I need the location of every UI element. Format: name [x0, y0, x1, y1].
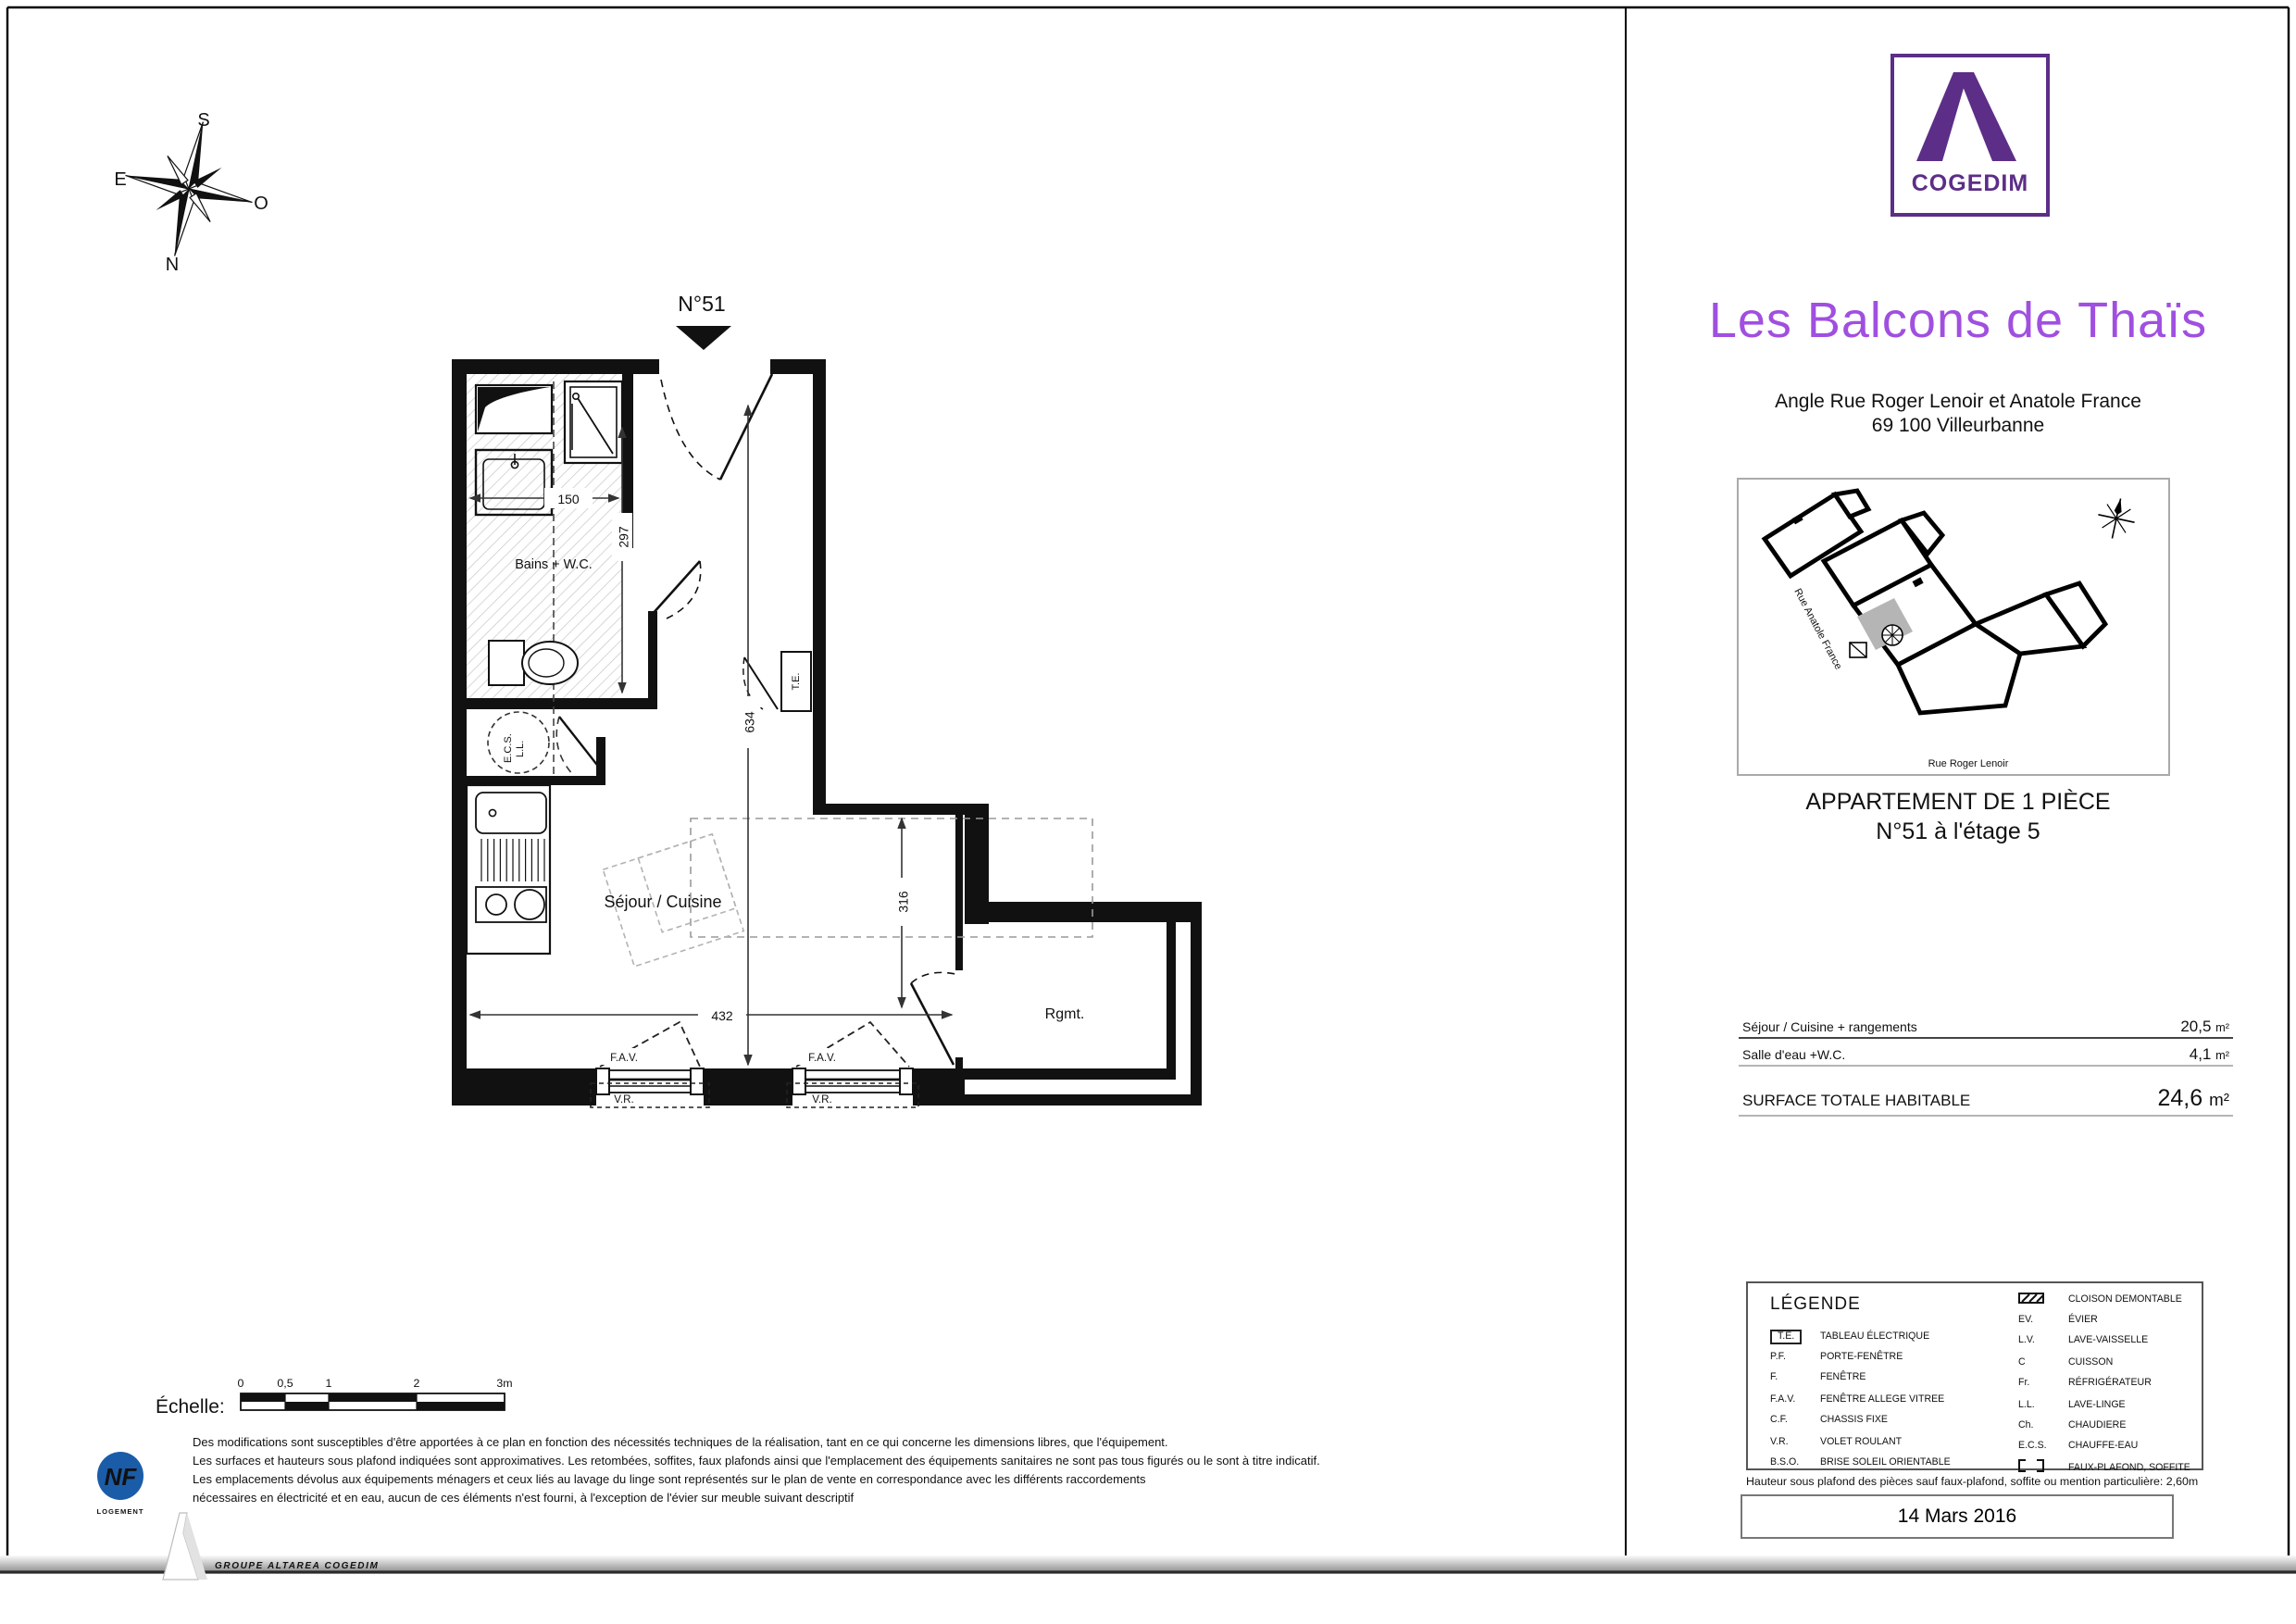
- dim-316: 316: [896, 891, 911, 913]
- leg-desc: RÉFRIGÉRATEUR: [2068, 1379, 2152, 1390]
- project-title: Les Balcons de Thaïs: [1628, 293, 2289, 350]
- date-box: 14 Mars 2016: [1741, 1494, 2174, 1539]
- floor-plan: E.C.S. L.L.: [452, 359, 1202, 1107]
- compass-rose-icon: S E O N: [111, 108, 268, 275]
- legend-item: B.S.O.BRISE SOLEIL ORIENTABLE: [1770, 1453, 1951, 1474]
- scale-tick-05: 0,5: [277, 1377, 293, 1390]
- ll-label: L.L.: [515, 741, 526, 757]
- leg-desc: CLOISON DEMONTABLE: [2068, 1293, 2182, 1305]
- dim-297: 297: [617, 526, 631, 548]
- footer-brand-text: GROUPE ALTAREA COGEDIM: [215, 1561, 379, 1571]
- legend-box: LÉGENDE T.E.TABLEAU ÉLECTRIQUE P.F.PORTE…: [1746, 1281, 2203, 1470]
- legend-item: L.L.LAVE-LINGE: [2018, 1394, 2190, 1416]
- leg-desc: CUISSON: [2068, 1357, 2113, 1368]
- fav2-label: F.A.V.: [808, 1052, 836, 1064]
- scale-tick-1: 1: [326, 1377, 332, 1390]
- scale-tick-0: 0: [238, 1377, 244, 1390]
- leg-desc: CHAUFFE-EAU: [2068, 1442, 2138, 1453]
- surface-total-value: 24,6: [2158, 1085, 2203, 1111]
- leg-desc: CHAUDIERE: [2068, 1420, 2126, 1431]
- floorplan-page: S E O N N°51: [0, 0, 2296, 1624]
- room-label-sejour: Séjour / Cuisine: [604, 893, 721, 911]
- legend-item: E.C.S.CHAUFFE-EAU: [2018, 1436, 2190, 1457]
- disclaimer-line-2: Les surfaces et hauteurs sous plafond in…: [193, 1454, 1320, 1468]
- vr1-label: V.R.: [614, 1093, 633, 1106]
- dim-634: 634: [742, 711, 757, 733]
- legend-right-column: CLOISON DEMONTABLE EV.ÉVIER L.V.LAVE-VAI…: [2018, 1289, 2190, 1479]
- disclaimer: Des modifications sont susceptibles d'êt…: [193, 1435, 1320, 1505]
- apartment-floor: N°51 à l'étage 5: [1628, 818, 2289, 846]
- surface-row-value: 4,1: [2190, 1043, 2212, 1062]
- legend-item: F.FENÊTRE: [1770, 1368, 1951, 1390]
- site-map: Rue Anatole France Rue Roger Lenoir: [1737, 478, 2170, 776]
- legend-item: L.V.LAVE-VAISSELLE: [2018, 1331, 2190, 1353]
- table-row: Séjour / Cuisine + rangements 20,5 m²: [1739, 1011, 2233, 1039]
- project-address: Angle Rue Roger Lenoir et Anatole France…: [1628, 391, 2289, 439]
- table-row: Salle d'eau +W.C. 4,1 m²: [1739, 1039, 2233, 1067]
- cogedim-logo: COGEDIM: [1890, 54, 2050, 217]
- cloison-demontable-icon: [2018, 1292, 2044, 1303]
- apartment-info: APPARTEMENT DE 1 PIÈCE N°51 à l'étage 5: [1628, 789, 2289, 846]
- dim-432: 432: [711, 1008, 733, 1023]
- leg-desc: CHASSIS FIXE: [1820, 1416, 1888, 1427]
- ceiling-height-note: Hauteur sous plafond des pièces sauf fau…: [1746, 1476, 2231, 1489]
- leg-desc: PORTE-FENÊTRE: [1820, 1352, 1903, 1363]
- dim-150: 150: [557, 492, 580, 506]
- legend-item: CCUISSON: [2018, 1352, 2190, 1373]
- surface-total-label: SURFACE TOTALE HABITABLE: [1742, 1091, 1970, 1109]
- legend-item: Fr.RÉFRIGÉRATEUR: [2018, 1373, 2190, 1394]
- legend-left-column: T.E.TABLEAU ÉLECTRIQUE P.F.PORTE-FENÊTRE…: [1770, 1326, 1951, 1473]
- scale-tick-2: 2: [414, 1377, 420, 1390]
- room-label-bains: Bains + W.C.: [515, 557, 593, 572]
- entrance-arrow-icon: [676, 326, 731, 350]
- compass-west-label: O: [254, 194, 268, 214]
- address-line-1: Angle Rue Roger Lenoir et Anatole France: [1628, 391, 2289, 415]
- legend-item: P.F.PORTE-FENÊTRE: [1770, 1347, 1951, 1368]
- surface-row-unit: m²: [2215, 1021, 2229, 1034]
- unit-entrance-marker: N°51: [676, 292, 731, 350]
- entry-door: [661, 374, 772, 480]
- street-label-anatole: Rue Anatole France: [1791, 587, 1843, 671]
- surface-total-row: SURFACE TOTALE HABITABLE 24,6 m²: [1739, 1080, 2233, 1117]
- unit-number-label: N°51: [678, 292, 725, 316]
- apartment-type: APPARTEMENT DE 1 PIÈCE: [1628, 789, 2289, 818]
- te-label: T.E.: [791, 673, 802, 691]
- disclaimer-line-3: Les emplacements dévolus aux équipements…: [193, 1472, 1146, 1486]
- storage-door: [911, 972, 955, 1065]
- leg-desc: BRISE SOLEIL ORIENTABLE: [1820, 1457, 1951, 1468]
- legend-item: T.E.TABLEAU ÉLECTRIQUE: [1770, 1326, 1951, 1347]
- leg-desc: FENÊTRE ALLEGE VITREE: [1820, 1394, 1944, 1405]
- cogedim-lambda-icon: [1894, 57, 2046, 165]
- disclaimer-line-1: Des modifications sont susceptibles d'êt…: [193, 1435, 1168, 1449]
- legend-title: LÉGENDE: [1770, 1294, 1861, 1315]
- legend-item: EV.ÉVIER: [2018, 1310, 2190, 1331]
- leg-desc: VOLET ROULANT: [1820, 1436, 1902, 1447]
- plan-date: 14 Mars 2016: [1898, 1505, 2016, 1528]
- leg-desc: LAVE-LINGE: [2068, 1399, 2126, 1410]
- wc-bowl: [522, 642, 578, 684]
- legend-desc: TABLEAU ÉLECTRIQUE: [1820, 1330, 1929, 1342]
- leg-desc: ÉVIER: [2068, 1315, 2098, 1326]
- surface-row-unit: m²: [2215, 1049, 2229, 1062]
- site-compass-icon: [2094, 494, 2139, 542]
- nf-logo-subtext: LOGEMENT: [96, 1507, 143, 1516]
- te-symbol: T.E.: [1770, 1329, 1802, 1343]
- site-buildings: [1765, 491, 2105, 713]
- compass-south-label: S: [197, 110, 209, 131]
- kitchen-block: [467, 785, 550, 954]
- scale-tick-3: 3m: [496, 1377, 512, 1390]
- cogedim-logo-text: COGEDIM: [1894, 170, 2046, 196]
- legend-item: F.A.V.FENÊTRE ALLEGE VITREE: [1770, 1389, 1951, 1410]
- surface-row-label: Séjour / Cuisine + rangements: [1742, 1021, 1917, 1034]
- legend-item: V.R.VOLET ROULANT: [1770, 1431, 1951, 1453]
- legend-item: Ch.CHAUDIERE: [2018, 1416, 2190, 1437]
- room-label-rgmt: Rgmt.: [1045, 1006, 1085, 1022]
- surface-row-value: 20,5: [2180, 1016, 2211, 1034]
- compass-north-label: N: [166, 255, 179, 275]
- disclaimer-line-4: nécessaires en électricité et en eau, au…: [193, 1491, 855, 1505]
- ecs-label: E.C.S.: [503, 733, 514, 763]
- faux-plafond-icon: [2018, 1460, 2044, 1473]
- surface-row-label: Salle d'eau +W.C.: [1742, 1049, 1845, 1062]
- legend-item: CLOISON DEMONTABLE: [2018, 1289, 2190, 1310]
- vr2-label: V.R.: [812, 1093, 831, 1106]
- surface-total-unit: m²: [2209, 1091, 2229, 1109]
- nf-logement-logo: NF LOGEMENT: [96, 1452, 143, 1516]
- leg-desc: FENÊTRE: [1820, 1373, 1865, 1384]
- leg-desc: FAUX-PLAFOND, SOFFITE: [2068, 1463, 2190, 1474]
- scale-bar: Échelle: 0 0,5 1 2 3m: [156, 1377, 513, 1418]
- surface-table: Séjour / Cuisine + rangements 20,5 m² Sa…: [1739, 1011, 2233, 1117]
- street-label-lenoir: Rue Roger Lenoir: [1928, 758, 2009, 769]
- leg-desc: LAVE-VAISSELLE: [2068, 1336, 2148, 1347]
- address-line-2: 69 100 Villeurbanne: [1628, 415, 2289, 439]
- compass-east-label: E: [114, 169, 126, 190]
- legend-item: C.F.CHASSIS FIXE: [1770, 1410, 1951, 1431]
- bathroom-door: [652, 561, 701, 618]
- fav1-label: F.A.V.: [610, 1052, 638, 1064]
- nf-logo-text: NF: [105, 1463, 138, 1491]
- scale-label: Échelle:: [156, 1396, 225, 1418]
- wc-tank: [489, 641, 524, 685]
